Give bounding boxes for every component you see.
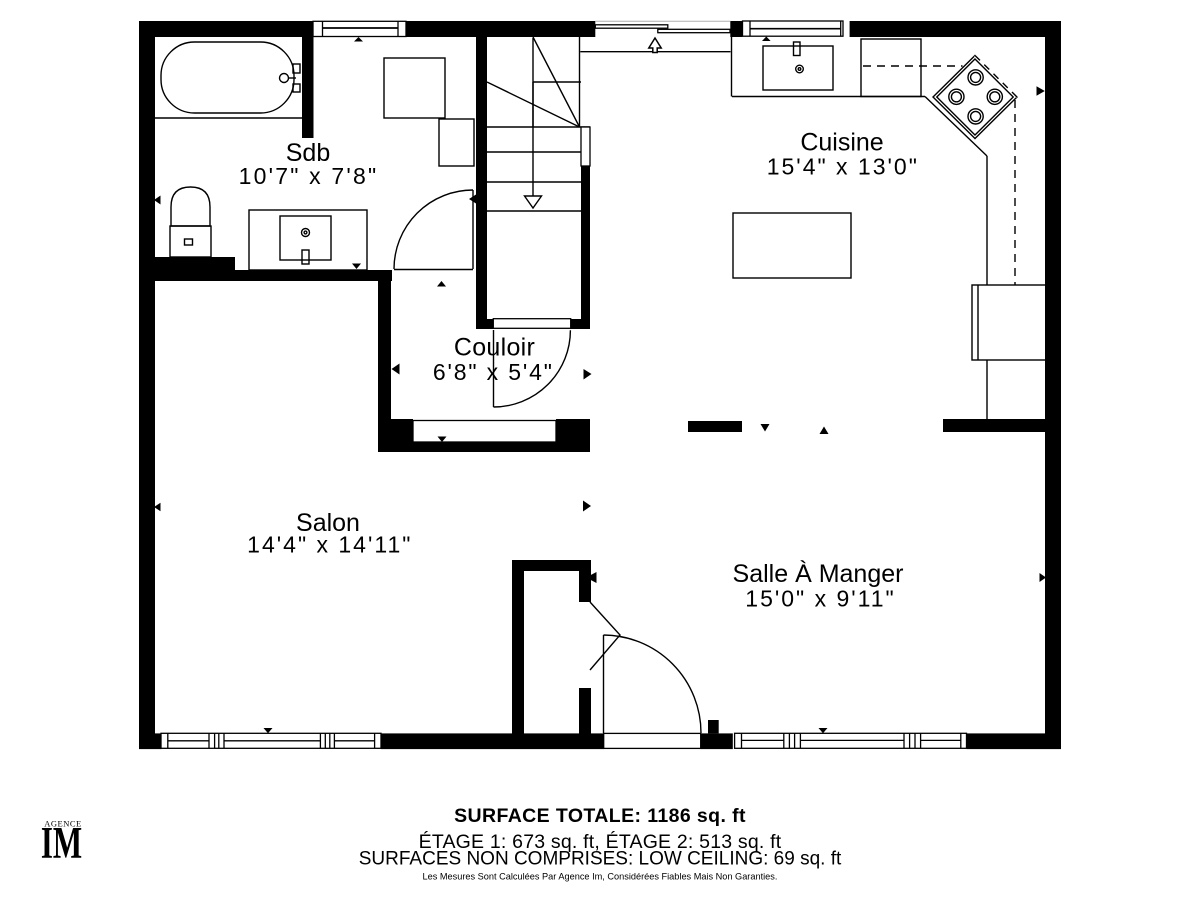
svg-text:15'0" x 9'11": 15'0" x 9'11" bbox=[745, 586, 895, 612]
svg-text:Les Mesures Sont Calculées Par: Les Mesures Sont Calculées Par Agence Im… bbox=[423, 872, 778, 882]
svg-text:6'8" x 5'4": 6'8" x 5'4" bbox=[433, 359, 554, 385]
svg-text:IM: IM bbox=[41, 818, 82, 868]
svg-text:10'7" x 7'8": 10'7" x 7'8" bbox=[239, 163, 379, 189]
svg-text:Salle À Manger: Salle À Manger bbox=[733, 559, 904, 588]
svg-text:14'4" x 14'11": 14'4" x 14'11" bbox=[247, 532, 412, 558]
svg-text:Cuisine: Cuisine bbox=[800, 129, 883, 157]
svg-text:SURFACES NON COMPRISES: LOW CE: SURFACES NON COMPRISES: LOW CEILING: 69 … bbox=[359, 849, 842, 870]
svg-text:SURFACE TOTALE: 1186 sq. ft: SURFACE TOTALE: 1186 sq. ft bbox=[454, 805, 746, 827]
svg-text:Couloir: Couloir bbox=[454, 333, 535, 361]
svg-text:15'4" x 13'0": 15'4" x 13'0" bbox=[767, 154, 919, 180]
